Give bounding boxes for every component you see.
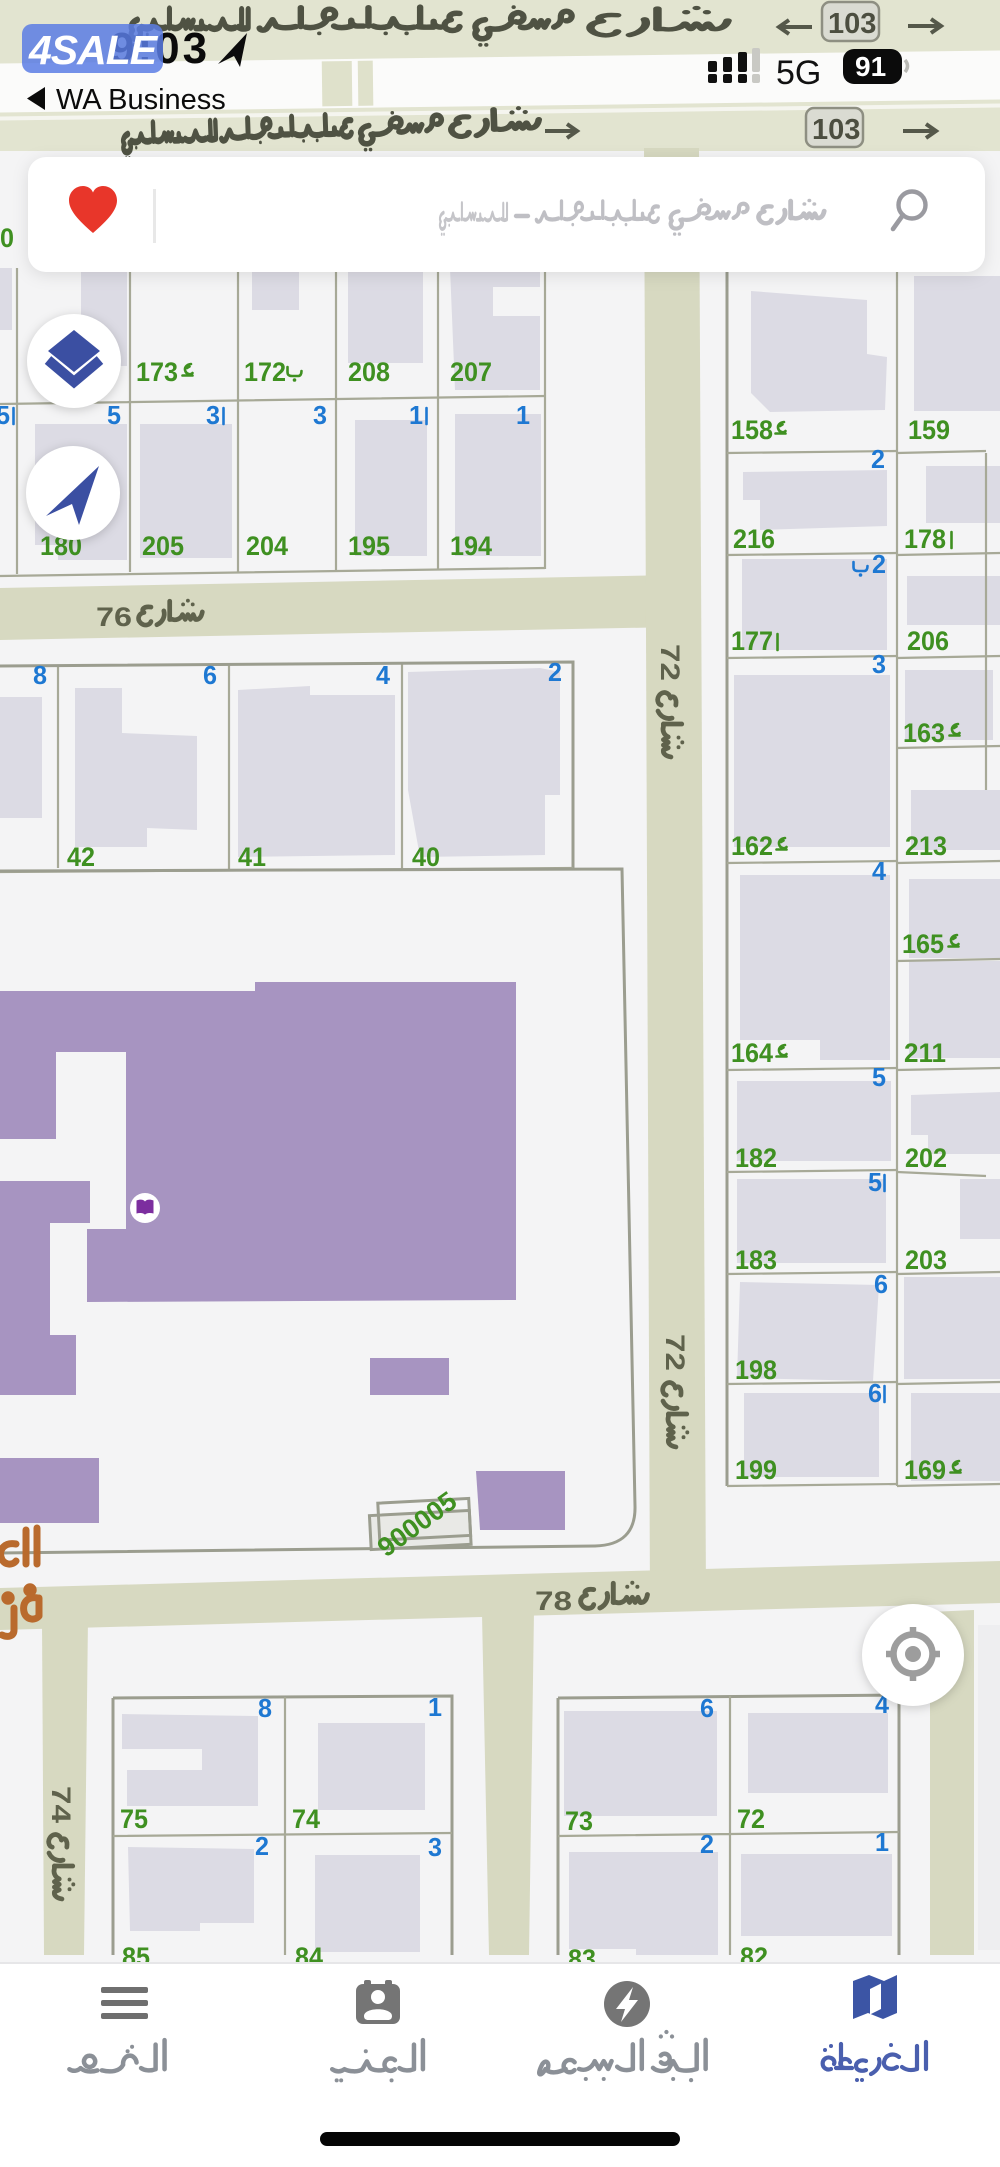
svg-text:213: 213 bbox=[905, 831, 947, 861]
svg-text:163: 163 bbox=[903, 718, 945, 748]
svg-text:4SALE: 4SALE bbox=[28, 27, 159, 73]
svg-text:205: 205 bbox=[142, 531, 184, 561]
svg-text:5: 5 bbox=[868, 1167, 882, 1197]
svg-text:6: 6 bbox=[203, 660, 217, 690]
svg-text:4: 4 bbox=[376, 660, 391, 690]
svg-text:173: 173 bbox=[136, 357, 178, 387]
svg-text:1: 1 bbox=[875, 1827, 889, 1857]
svg-text:159: 159 bbox=[908, 415, 950, 445]
svg-text:204: 204 bbox=[246, 531, 288, 561]
svg-text:194: 194 bbox=[450, 531, 492, 561]
svg-text:172: 172 bbox=[244, 357, 286, 387]
svg-text:195: 195 bbox=[348, 531, 390, 561]
svg-text:162: 162 bbox=[731, 831, 773, 861]
svg-text:3: 3 bbox=[428, 1832, 442, 1862]
svg-text:6: 6 bbox=[868, 1378, 882, 1408]
svg-text:72: 72 bbox=[660, 1334, 690, 1371]
svg-text:183: 183 bbox=[735, 1245, 777, 1275]
svg-text:40: 40 bbox=[412, 842, 440, 872]
svg-text:4: 4 bbox=[872, 856, 887, 886]
svg-text:75: 75 bbox=[120, 1804, 148, 1834]
svg-text:5: 5 bbox=[872, 1062, 886, 1092]
svg-text:2: 2 bbox=[872, 549, 886, 579]
svg-text:177: 177 bbox=[731, 626, 773, 656]
svg-text:182: 182 bbox=[735, 1143, 777, 1173]
svg-text:206: 206 bbox=[907, 626, 949, 656]
svg-text:42: 42 bbox=[67, 842, 95, 872]
svg-text:2: 2 bbox=[700, 1829, 714, 1859]
svg-text:78: 78 bbox=[535, 1586, 572, 1616]
svg-text:199: 199 bbox=[735, 1455, 777, 1485]
svg-text:216: 216 bbox=[733, 524, 775, 554]
svg-text:2: 2 bbox=[255, 1831, 269, 1861]
svg-text:76: 76 bbox=[96, 602, 132, 632]
svg-text:2: 2 bbox=[871, 444, 885, 474]
svg-text:1: 1 bbox=[516, 400, 530, 430]
svg-text:1: 1 bbox=[409, 400, 423, 430]
svg-text:6: 6 bbox=[874, 1269, 888, 1299]
svg-text:164: 164 bbox=[731, 1038, 773, 1068]
svg-text:3: 3 bbox=[872, 649, 886, 679]
svg-text:208: 208 bbox=[348, 357, 390, 387]
svg-text:169: 169 bbox=[904, 1455, 946, 1485]
svg-text:73: 73 bbox=[565, 1806, 593, 1836]
svg-text:74: 74 bbox=[46, 1786, 76, 1823]
svg-text:211: 211 bbox=[904, 1038, 946, 1068]
svg-text:8: 8 bbox=[33, 660, 47, 690]
svg-text:5: 5 bbox=[107, 400, 121, 430]
svg-text:91: 91 bbox=[855, 51, 886, 82]
svg-text:202: 202 bbox=[905, 1143, 947, 1173]
svg-text:0: 0 bbox=[0, 223, 14, 253]
svg-text:165: 165 bbox=[902, 929, 944, 959]
svg-text:2: 2 bbox=[548, 657, 562, 687]
svg-text:103: 103 bbox=[812, 114, 860, 146]
svg-text:WA Business: WA Business bbox=[56, 84, 226, 116]
svg-text:72: 72 bbox=[655, 644, 685, 681]
svg-text:207: 207 bbox=[450, 357, 492, 387]
svg-text:1: 1 bbox=[428, 1692, 442, 1722]
svg-text:103: 103 bbox=[828, 8, 876, 40]
svg-text:74: 74 bbox=[292, 1804, 320, 1834]
svg-text:72: 72 bbox=[737, 1804, 765, 1834]
svg-text:198: 198 bbox=[735, 1355, 777, 1385]
svg-text:5: 5 bbox=[0, 400, 10, 430]
svg-text:8: 8 bbox=[258, 1693, 272, 1723]
svg-text:158: 158 bbox=[731, 415, 773, 445]
svg-text:6: 6 bbox=[700, 1693, 714, 1723]
svg-text:203: 203 bbox=[905, 1245, 947, 1275]
svg-text:3: 3 bbox=[313, 400, 327, 430]
svg-text:3: 3 bbox=[206, 400, 220, 430]
svg-text:178: 178 bbox=[904, 524, 946, 554]
svg-text:5G: 5G bbox=[776, 54, 821, 92]
svg-text:41: 41 bbox=[238, 842, 266, 872]
